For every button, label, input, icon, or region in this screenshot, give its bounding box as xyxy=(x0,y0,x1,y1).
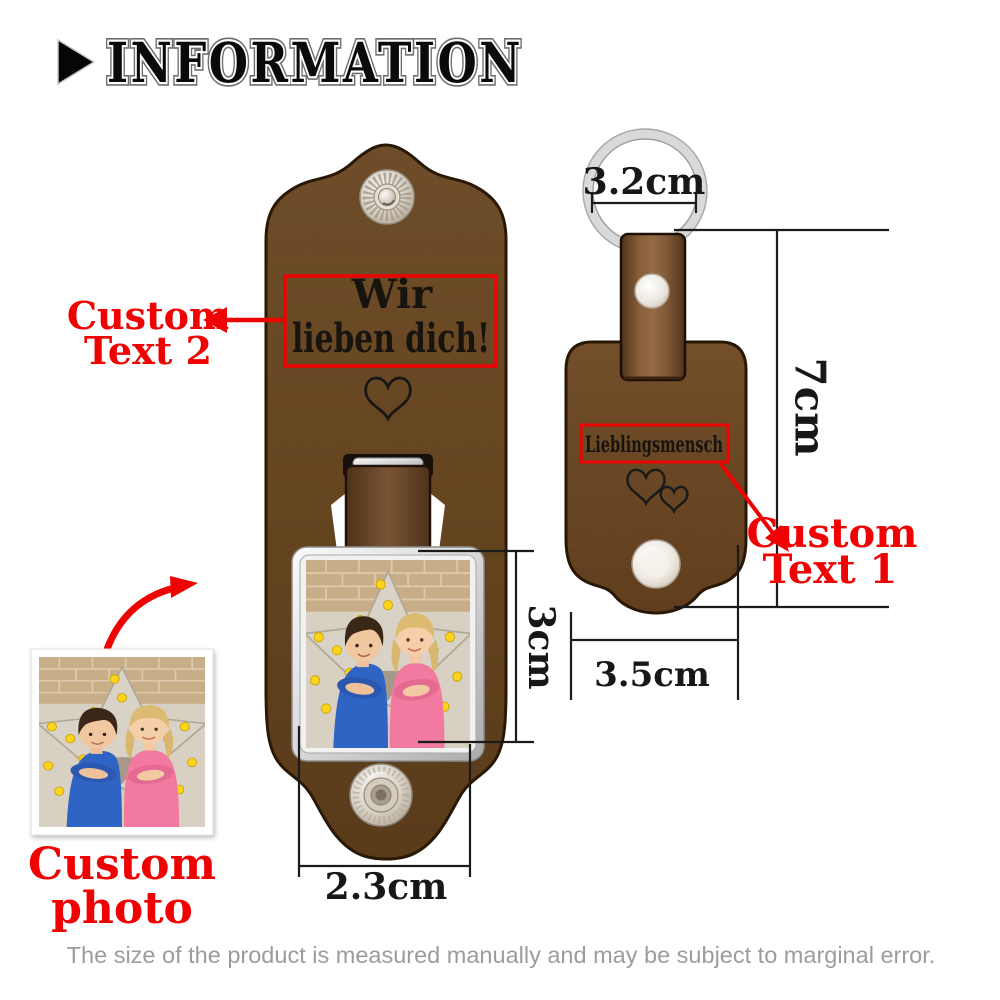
label-custom-text-1-line2: Text 1 xyxy=(763,546,898,593)
custom-photo-in-frame xyxy=(305,560,471,748)
page-title: INFORMATION INFORMATION INFORMATION xyxy=(107,30,523,95)
disclaimer-text: The size of the product is measured manu… xyxy=(67,942,936,968)
label-custom-text-2-line2: Text 2 xyxy=(84,328,212,373)
label-custom-photo-line2: photo xyxy=(51,883,193,934)
engraved-text-line1: Wir xyxy=(351,271,433,318)
photo-height-value: 3cm xyxy=(520,604,562,689)
engraved-text-line2: lieben dich! xyxy=(292,315,490,362)
rivet xyxy=(635,274,669,308)
svg-text:INFORMATION: INFORMATION xyxy=(107,30,523,95)
snap-button-bottom xyxy=(350,764,412,826)
header: INFORMATION INFORMATION INFORMATION xyxy=(58,30,523,95)
body-width-value: 3.5cm xyxy=(594,655,710,695)
left-keychain: Wir lieben dich! xyxy=(250,130,520,875)
snap-button-top xyxy=(360,170,414,224)
sample-photo-image xyxy=(38,657,206,827)
snap-button-right xyxy=(632,540,680,588)
photo-frame xyxy=(292,547,484,761)
custom-photo-sample xyxy=(31,649,213,835)
photo-width-value: 2.3cm xyxy=(325,866,448,908)
ring-diameter-value: 3.2cm xyxy=(583,161,706,203)
product-infographic: INFORMATION INFORMATION INFORMATION Wir … xyxy=(0,0,1000,1000)
total-height-value: 7cm xyxy=(786,357,835,456)
engraved-text-right: Lieblingsmensch xyxy=(585,432,723,458)
leather-strap-loop xyxy=(346,466,430,552)
infographic-canvas: INFORMATION INFORMATION INFORMATION Wir … xyxy=(0,0,1000,1000)
